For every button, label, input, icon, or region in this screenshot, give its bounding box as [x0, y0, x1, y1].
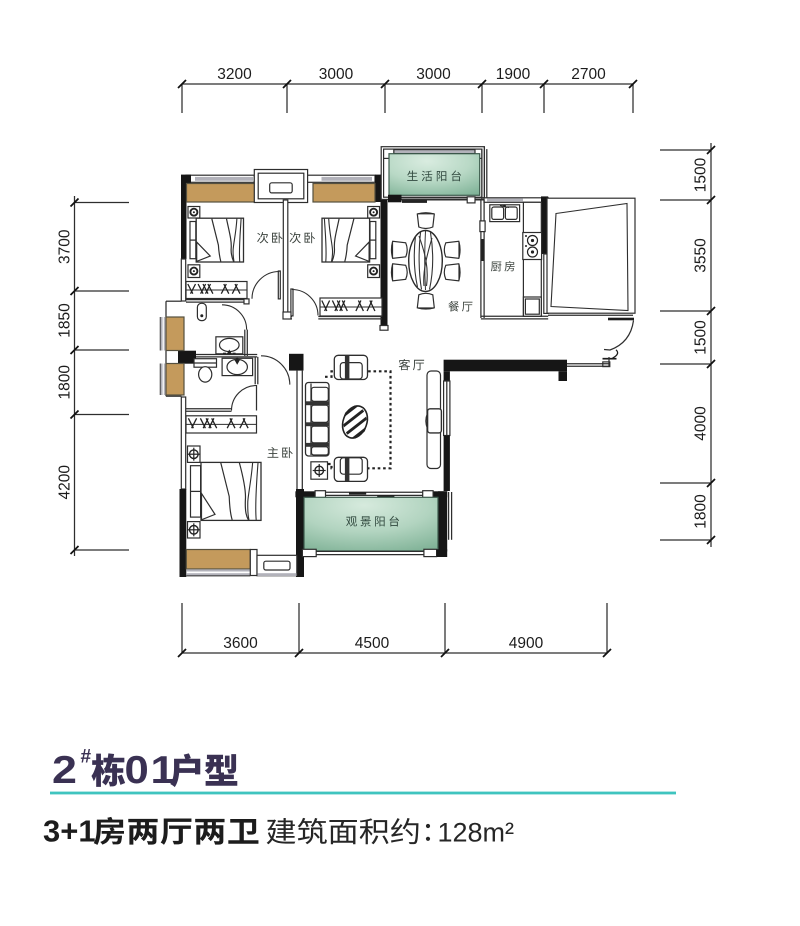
- svg-text:3200: 3200: [217, 66, 252, 83]
- svg-text:4900: 4900: [509, 635, 544, 652]
- svg-text:1800: 1800: [693, 494, 710, 529]
- svg-text:1900: 1900: [496, 66, 531, 83]
- svg-text:4000: 4000: [693, 406, 710, 441]
- svg-text:2700: 2700: [571, 66, 606, 83]
- svg-text:#: #: [81, 747, 92, 768]
- svg-text:1800: 1800: [57, 365, 74, 400]
- svg-text:1850: 1850: [57, 303, 74, 338]
- svg-text:3000: 3000: [416, 66, 451, 83]
- svg-text:01: 01: [125, 748, 177, 791]
- svg-text:3000: 3000: [319, 66, 354, 83]
- svg-text:3700: 3700: [57, 229, 74, 264]
- svg-text:1500: 1500: [693, 157, 710, 192]
- svg-text:2: 2: [52, 748, 77, 792]
- svg-text:4200: 4200: [57, 465, 74, 500]
- svg-text:3550: 3550: [693, 238, 710, 273]
- svg-text:128m²: 128m²: [438, 818, 515, 848]
- svg-text:1500: 1500: [693, 320, 710, 355]
- svg-text:3+1: 3+1: [43, 814, 96, 849]
- svg-text:3600: 3600: [223, 635, 258, 652]
- svg-text:4500: 4500: [355, 635, 390, 652]
